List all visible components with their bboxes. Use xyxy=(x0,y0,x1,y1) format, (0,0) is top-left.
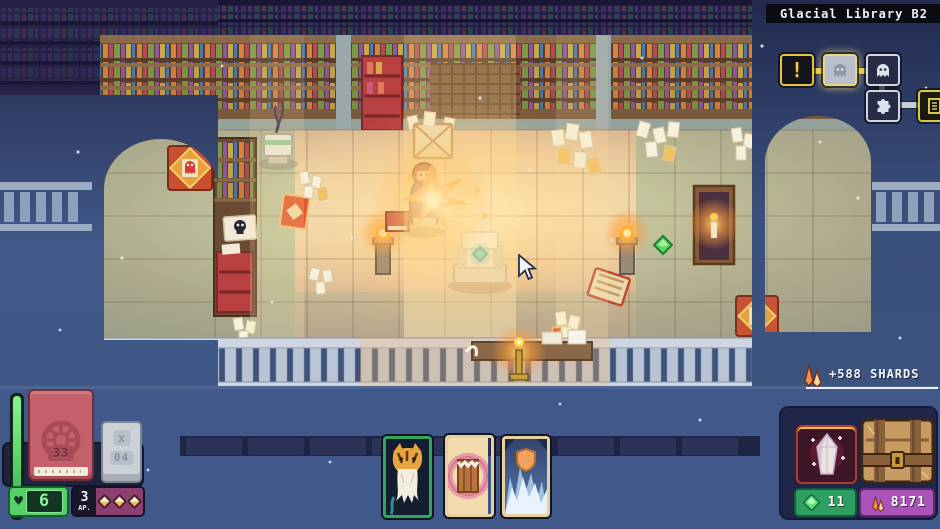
ap-gem-icon xyxy=(97,494,113,510)
ap-counter: 3 AP. xyxy=(73,488,96,515)
doorway-right xyxy=(688,186,740,264)
gem-icon xyxy=(803,494,820,511)
loot-panel: 11 8171 xyxy=(779,406,938,520)
ghost-icon xyxy=(874,61,892,79)
exclamation-icon: ! xyxy=(791,60,803,80)
hand-card-beast[interactable] xyxy=(383,436,432,518)
shard-popup-underline xyxy=(806,387,938,389)
ap-pips xyxy=(96,488,143,515)
hand-card-ice-shield[interactable] xyxy=(502,436,550,517)
shard-pickup-popup: +588 SHARDS xyxy=(798,361,919,387)
ap-value: 3 xyxy=(81,491,89,504)
minimap-node-puzzle[interactable] xyxy=(866,90,900,122)
gem-count: 11 xyxy=(825,495,848,510)
hp-display: ♥ 6 xyxy=(8,486,69,517)
shard-currency-badge: 8171 xyxy=(859,488,935,517)
minimap-node-exit[interactable] xyxy=(918,90,940,122)
mouse-cursor xyxy=(517,254,541,284)
location-title-bar: Glacial Library B2 xyxy=(766,4,940,23)
door-icon xyxy=(926,97,940,115)
hand-card-bite[interactable] xyxy=(445,435,494,517)
hp-value: 6 xyxy=(26,490,63,513)
ice-shield-card-art xyxy=(505,439,547,514)
treasure-chest-icon xyxy=(860,416,935,485)
shard-popup-text: +588 SHARDS xyxy=(829,367,919,381)
shard-icon xyxy=(798,361,824,387)
crystal-icon xyxy=(807,432,847,478)
ap-gem-icon xyxy=(127,494,143,510)
minimap-node-enemy-1[interactable] xyxy=(823,54,857,86)
minimap-node-event[interactable]: ! xyxy=(780,54,814,86)
bite-card-art xyxy=(448,438,488,514)
deck-pile[interactable]: 33 xyxy=(28,389,94,481)
heart-icon: ♥ xyxy=(14,494,23,509)
treasure-chest-button[interactable] xyxy=(860,416,935,485)
shard-icon xyxy=(868,493,886,512)
minimap-node-enemy-2[interactable] xyxy=(866,54,900,86)
crystal-item-slot[interactable] xyxy=(796,425,857,484)
ap-display: 3 AP. xyxy=(71,486,145,517)
ghost-icon xyxy=(831,61,849,79)
shard-count: 8171 xyxy=(891,495,926,510)
discard-pile[interactable]: x 04 xyxy=(101,421,142,483)
candelabra xyxy=(491,324,547,380)
discard-count: 04 xyxy=(110,451,133,465)
deck-count: 33 xyxy=(48,446,74,461)
deck-spine xyxy=(34,467,88,476)
game-window: Glacial Library B2 ! 33 xyxy=(0,0,940,529)
ap-gem-icon xyxy=(112,494,128,510)
beast-card-art xyxy=(386,439,429,515)
puzzle-icon xyxy=(874,97,892,115)
ap-label: AP. xyxy=(78,505,91,512)
gem-currency-badge: 11 xyxy=(794,488,857,517)
minimap-connector xyxy=(899,102,919,108)
location-title: Glacial Library B2 xyxy=(780,7,928,21)
discard-x-icon: x xyxy=(113,430,130,446)
